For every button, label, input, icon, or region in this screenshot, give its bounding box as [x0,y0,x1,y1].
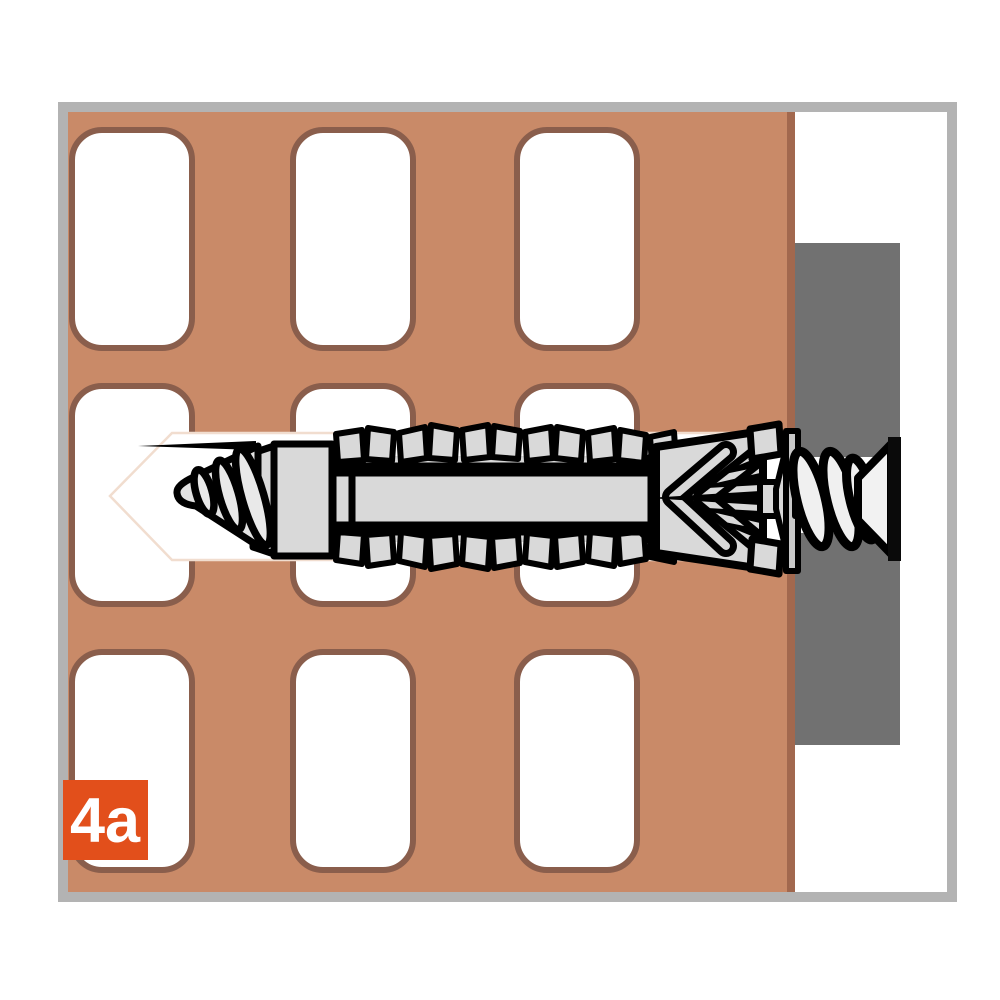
plug-tooth [336,430,364,462]
plug-core-channel [332,472,652,526]
plug-tooth [618,430,646,463]
diagram-canvas: 4a [0,0,1000,1000]
flange-petal-top [750,424,781,459]
brick-hole [293,130,413,348]
plug-tooth [588,428,616,462]
plug-tooth [462,425,490,460]
plug-tooth [336,532,364,564]
plug-tooth [462,534,490,569]
step-label-badge: 4a [63,780,148,860]
plug-tooth [399,532,427,567]
plug-tooth [588,532,616,566]
screw-head-face [888,437,901,561]
plug-tooth [366,428,394,461]
plug-tooth [492,535,520,568]
brick-hole [517,130,637,348]
flange-petal-bottom [750,539,781,574]
plug-tooth [399,427,427,462]
plug-tooth [525,533,553,567]
installation-diagram: 4a [0,0,1000,1000]
plug-tooth [525,427,553,461]
plug-tooth [366,533,394,566]
plug-teeth-top [336,425,676,463]
plug-teeth-bottom [336,531,676,569]
plug-end-block [274,444,332,556]
step-label: 4a [70,786,141,856]
plug-tooth [555,533,583,567]
plug-tooth [429,425,457,460]
plug-collar [640,424,798,574]
brick-hole [517,652,637,870]
brick-hole [72,130,192,348]
plug-tooth [492,426,520,459]
brick-hole [293,652,413,870]
plug-tooth [429,534,457,569]
plug-tooth [555,427,583,461]
